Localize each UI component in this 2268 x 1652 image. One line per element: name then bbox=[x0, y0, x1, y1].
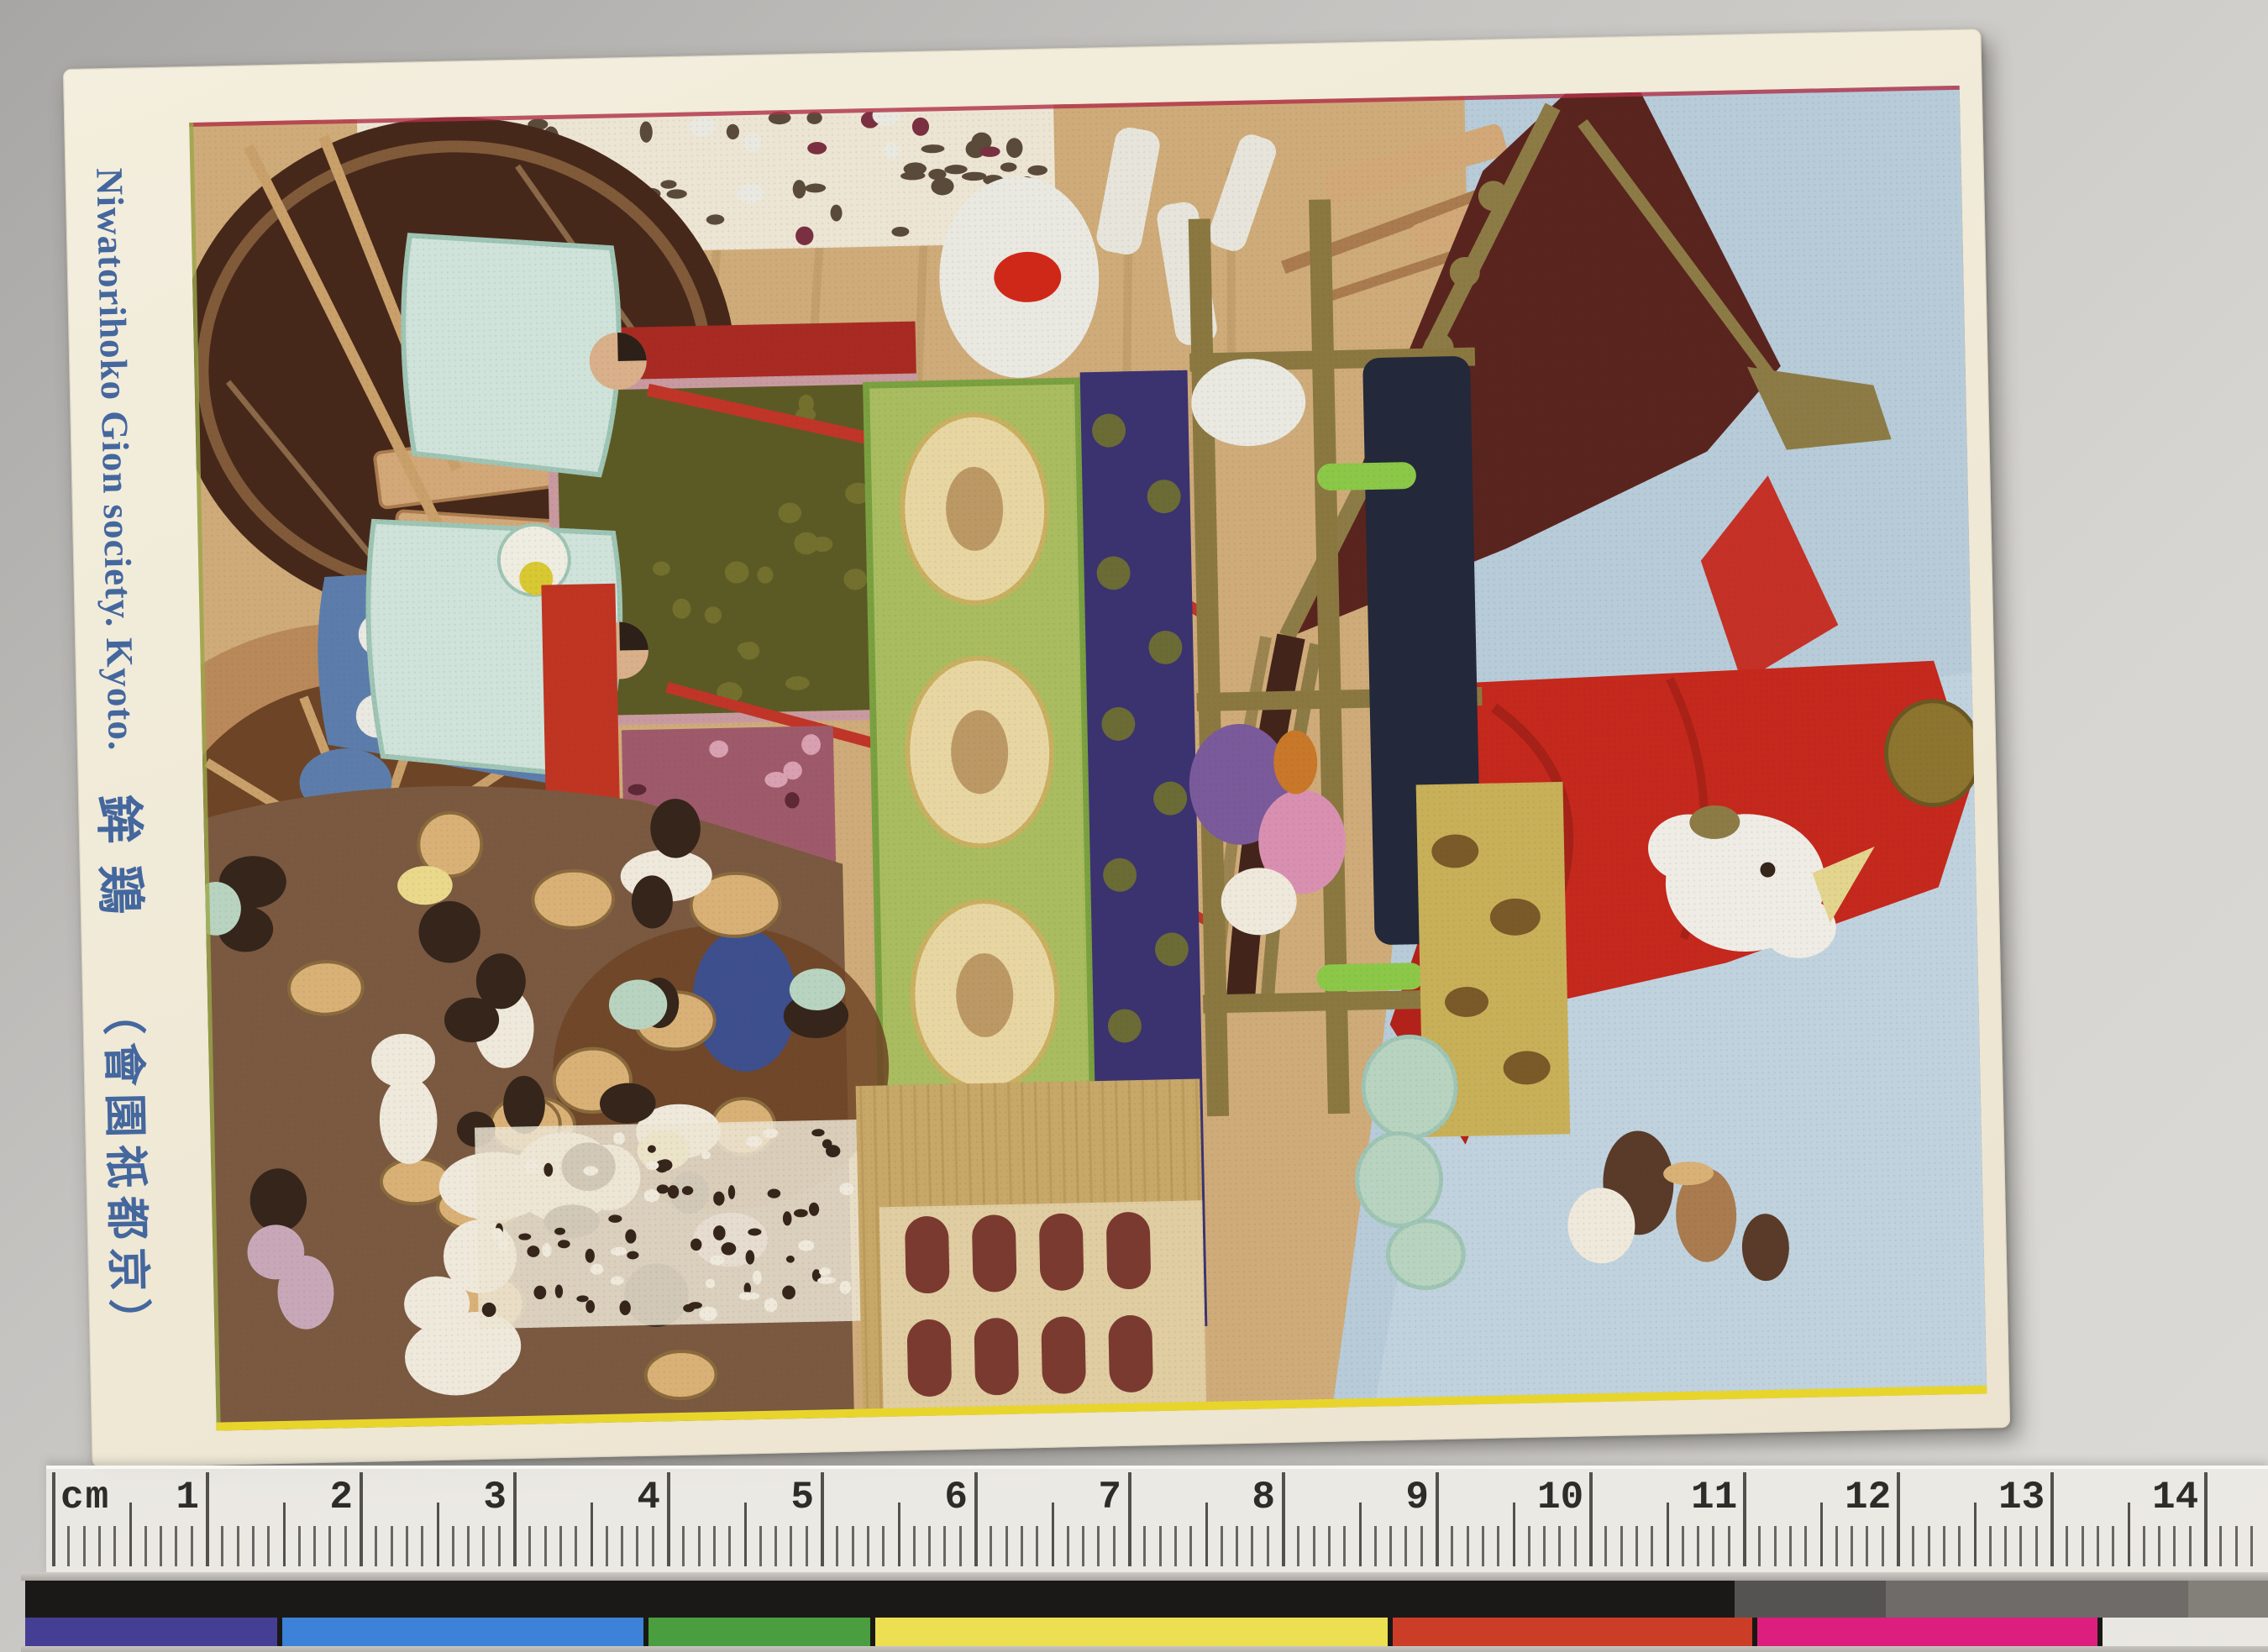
ruler-tick bbox=[1697, 1526, 1699, 1566]
ruler-tick bbox=[1820, 1503, 1823, 1566]
ruler-tick bbox=[913, 1526, 916, 1566]
ruler-tick bbox=[1451, 1526, 1453, 1566]
ruler-tick bbox=[482, 1526, 485, 1566]
ruler-number-8: 8 bbox=[1230, 1476, 1275, 1519]
ruler-tick bbox=[437, 1503, 439, 1566]
ruler-tick bbox=[1251, 1526, 1253, 1566]
ruler-tick bbox=[1313, 1526, 1315, 1566]
ruler-tick bbox=[1021, 1526, 1023, 1566]
ruler-tick bbox=[1804, 1526, 1807, 1566]
ruler-tick bbox=[1528, 1526, 1530, 1566]
ruler-tick bbox=[575, 1526, 577, 1566]
ruler-tick bbox=[344, 1526, 347, 1566]
caption-english: Niwatorihoko Gion society. Kyoto. bbox=[87, 167, 144, 751]
ruler-tick bbox=[898, 1503, 900, 1566]
ruler-tick bbox=[1067, 1526, 1069, 1566]
ruler-tick bbox=[2019, 1526, 2022, 1566]
ruler-tick bbox=[1943, 1526, 1945, 1566]
ruler-tick bbox=[1497, 1526, 1499, 1566]
ruler-tick bbox=[2066, 1526, 2068, 1566]
ruler-tick bbox=[252, 1526, 255, 1566]
ruler-tick bbox=[1082, 1526, 1084, 1566]
ruler-tick bbox=[1236, 1526, 1238, 1566]
ruler-tick bbox=[1604, 1526, 1607, 1566]
ruler-tick bbox=[283, 1503, 286, 1566]
ruler-tick bbox=[1928, 1526, 1930, 1566]
ruler-cm-tick bbox=[206, 1472, 209, 1566]
color-patch-magenta bbox=[1757, 1618, 2097, 1646]
ruler-tick bbox=[790, 1526, 792, 1566]
ruler-tick bbox=[1835, 1526, 1838, 1566]
ruler-tick bbox=[452, 1526, 454, 1566]
ruler-tick bbox=[67, 1526, 70, 1566]
ruler-cm-tick bbox=[821, 1472, 824, 1566]
ruler-tick bbox=[943, 1526, 946, 1566]
ruler-cm-tick bbox=[1743, 1472, 1746, 1566]
ruler-tick bbox=[328, 1526, 331, 1566]
ruler-tick bbox=[1036, 1526, 1038, 1566]
ruler-tick bbox=[1389, 1526, 1392, 1566]
ruler-tick bbox=[1651, 1526, 1653, 1566]
ruler-tick bbox=[1420, 1526, 1423, 1566]
ruler-tick bbox=[144, 1526, 147, 1566]
ruler-tick bbox=[1574, 1526, 1577, 1566]
postcard-caption: Niwatorihoko Gion society. Kyoto. 鉾 鶏 （會… bbox=[79, 167, 165, 1382]
ruler-tick bbox=[175, 1526, 177, 1566]
ruler-tick bbox=[591, 1503, 593, 1566]
caption-kyoto-gion-kai: （會園祇都京） bbox=[95, 990, 165, 1350]
ruler-tick bbox=[2158, 1526, 2160, 1566]
ruler-tick bbox=[1205, 1503, 1208, 1566]
ruler-tick bbox=[1404, 1526, 1407, 1566]
ruler-tick bbox=[498, 1526, 501, 1566]
ruler-tick bbox=[1774, 1526, 1777, 1566]
ruler-cm-tick bbox=[2050, 1472, 2054, 1566]
ruler-tick bbox=[1159, 1526, 1162, 1566]
ruler-number-7: 7 bbox=[1076, 1476, 1121, 1519]
ruler-tick bbox=[636, 1526, 638, 1566]
ruler-unit-label: cm bbox=[60, 1476, 128, 1519]
ruler-tick bbox=[1343, 1526, 1346, 1566]
scan-background: Niwatorihoko Gion society. Kyoto. 鉾 鶏 （會… bbox=[0, 0, 2268, 1652]
halftone-overlay bbox=[189, 86, 1987, 1431]
ruler-tick bbox=[606, 1526, 608, 1566]
ruler-tick bbox=[2082, 1526, 2084, 1566]
ruler-tick bbox=[313, 1526, 316, 1566]
ruler-tick bbox=[1482, 1526, 1484, 1566]
ruler-number-3: 3 bbox=[461, 1476, 507, 1519]
ruler-tick bbox=[1789, 1526, 1792, 1566]
ruler-tick bbox=[1851, 1526, 1853, 1566]
ruler-tick bbox=[1328, 1526, 1331, 1566]
color-patch-white bbox=[2103, 1618, 2268, 1646]
ruler-tick bbox=[421, 1526, 423, 1566]
ruler-tick bbox=[129, 1503, 132, 1566]
ruler-tick bbox=[2219, 1526, 2222, 1566]
ruler-tick bbox=[1297, 1526, 1299, 1566]
ruler-tick bbox=[113, 1526, 116, 1566]
ruler-tick bbox=[1912, 1526, 1914, 1566]
ruler-tick bbox=[836, 1526, 838, 1566]
ruler-tick bbox=[1113, 1526, 1116, 1566]
ruler-cm-tick bbox=[1436, 1472, 1439, 1566]
ruler-tick bbox=[406, 1526, 408, 1566]
postcard: Niwatorihoko Gion society. Kyoto. 鉾 鶏 （會… bbox=[63, 29, 2010, 1467]
caption-kanji-niwatori: 鶏 bbox=[89, 864, 160, 915]
ruler-number-13: 13 bbox=[1998, 1476, 2044, 1519]
ruler-number-14: 14 bbox=[2152, 1476, 2197, 1519]
color-patch-row bbox=[0, 1618, 2268, 1646]
ruler-tick bbox=[1558, 1526, 1561, 1566]
ruler-tick bbox=[160, 1526, 162, 1566]
ruler-tick bbox=[2035, 1526, 2038, 1566]
target-metal-edge-bottom bbox=[21, 1646, 2268, 1652]
ruler-tick bbox=[990, 1526, 992, 1566]
target-metal-edge bbox=[21, 1572, 2268, 1581]
gray-step-4 bbox=[2188, 1581, 2268, 1618]
ruler-number-12: 12 bbox=[1845, 1476, 1890, 1519]
ruler-tick bbox=[959, 1526, 962, 1566]
ruler-tick bbox=[298, 1526, 301, 1566]
ruler-cm-tick bbox=[360, 1472, 363, 1566]
ruler-tick bbox=[1174, 1526, 1177, 1566]
ruler-tick bbox=[728, 1526, 731, 1566]
ruler-tick bbox=[1267, 1526, 1269, 1566]
ruler-tick bbox=[267, 1526, 270, 1566]
ruler-tick bbox=[1620, 1526, 1623, 1566]
ruler-cm-tick bbox=[1128, 1472, 1131, 1566]
ruler-body bbox=[46, 1466, 2268, 1576]
ruler-cm-tick bbox=[513, 1472, 517, 1566]
ruler-tick bbox=[928, 1526, 931, 1566]
ruler-cm-tick bbox=[1897, 1472, 1900, 1566]
ruler-tick bbox=[682, 1526, 685, 1566]
ruler-tick bbox=[1866, 1526, 1868, 1566]
gray-step-3 bbox=[1886, 1581, 2188, 1618]
ruler-number-11: 11 bbox=[1691, 1476, 1736, 1519]
ruler-number-10: 10 bbox=[1537, 1476, 1583, 1519]
ruler-tick bbox=[713, 1526, 716, 1566]
ruler-cm-tick bbox=[1589, 1472, 1593, 1566]
ruler-tick bbox=[375, 1526, 377, 1566]
ruler-tick bbox=[1374, 1526, 1377, 1566]
ruler-tick bbox=[2235, 1526, 2238, 1566]
ruler-tick bbox=[1467, 1526, 1469, 1566]
ruler-tick bbox=[2097, 1526, 2099, 1566]
ruler-tick bbox=[237, 1526, 239, 1566]
ruler: cm1234567891011121314 bbox=[0, 1466, 2268, 1572]
ruler-tick bbox=[2189, 1526, 2192, 1566]
ruler-tick bbox=[98, 1526, 101, 1566]
ruler-number-5: 5 bbox=[769, 1476, 814, 1519]
ruler-number-2: 2 bbox=[307, 1476, 353, 1519]
ruler-tick bbox=[1989, 1526, 1992, 1566]
ruler-tick bbox=[652, 1526, 654, 1566]
ruler-cm-tick bbox=[974, 1472, 978, 1566]
ruler-tick bbox=[2173, 1526, 2176, 1566]
ruler-tick bbox=[1682, 1526, 1684, 1566]
photo-scene-svg bbox=[189, 86, 1987, 1431]
ruler-tick bbox=[1882, 1526, 1884, 1566]
ruler-tick bbox=[774, 1526, 777, 1566]
ruler-tick bbox=[1974, 1503, 1977, 1566]
ruler-number-9: 9 bbox=[1383, 1476, 1429, 1519]
ruler-tick bbox=[1712, 1526, 1714, 1566]
ruler-tick bbox=[544, 1526, 547, 1566]
ruler-tick bbox=[744, 1503, 747, 1566]
color-patch-red bbox=[1393, 1618, 1752, 1646]
ruler-number-4: 4 bbox=[615, 1476, 660, 1519]
ruler-tick bbox=[1758, 1526, 1761, 1566]
ruler-tick bbox=[2004, 1526, 2007, 1566]
postcard-photo bbox=[189, 86, 1987, 1431]
ruler-number-1: 1 bbox=[154, 1476, 199, 1519]
ruler-tick bbox=[1359, 1503, 1362, 1566]
color-patch-indigo bbox=[25, 1618, 277, 1646]
ruler-tick bbox=[1221, 1526, 1223, 1566]
ruler-tick bbox=[1189, 1526, 1192, 1566]
color-patch-yellow bbox=[875, 1618, 1388, 1646]
ruler-tick bbox=[528, 1526, 531, 1566]
ruler-tick bbox=[1005, 1526, 1008, 1566]
color-patch-blue bbox=[282, 1618, 643, 1646]
ruler-tick bbox=[83, 1526, 86, 1566]
caption-kanji-hoko: 鉾 bbox=[87, 794, 159, 844]
ruler-tick bbox=[467, 1526, 470, 1566]
color-calibration-target bbox=[0, 1572, 2268, 1652]
ruler-tick bbox=[1513, 1503, 1515, 1566]
ruler-tick bbox=[2143, 1526, 2145, 1566]
ruler-cm-tick bbox=[52, 1472, 55, 1566]
ruler-tick bbox=[759, 1526, 762, 1566]
ruler-tick bbox=[1543, 1526, 1546, 1566]
ruler-tick bbox=[1958, 1526, 1961, 1566]
ruler-tick bbox=[698, 1526, 701, 1566]
ruler-cm-tick bbox=[667, 1472, 670, 1566]
ruler-tick bbox=[1052, 1503, 1054, 1566]
ruler-tick bbox=[1635, 1526, 1638, 1566]
ruler-tick bbox=[867, 1526, 869, 1566]
gray-step-1 bbox=[25, 1581, 1735, 1618]
ruler-tick bbox=[559, 1526, 562, 1566]
ruler-tick bbox=[882, 1526, 885, 1566]
ruler-tick bbox=[1143, 1526, 1146, 1566]
gray-step-2 bbox=[1735, 1581, 1886, 1618]
ruler-tick bbox=[621, 1526, 623, 1566]
ruler-tick bbox=[2128, 1503, 2130, 1566]
ruler-tick bbox=[221, 1526, 223, 1566]
ruler-tick bbox=[2112, 1526, 2114, 1566]
ruler-tick bbox=[806, 1526, 808, 1566]
ruler-cm-tick bbox=[1282, 1472, 1285, 1566]
ruler-tick bbox=[1667, 1503, 1669, 1566]
ruler-tick bbox=[1097, 1526, 1100, 1566]
ruler-cm-tick bbox=[2204, 1472, 2208, 1566]
grayscale-wedge-row bbox=[0, 1581, 2268, 1618]
color-patch-green bbox=[648, 1618, 870, 1646]
ruler-tick bbox=[391, 1526, 393, 1566]
ruler-number-6: 6 bbox=[922, 1476, 968, 1519]
ruler-tick bbox=[2250, 1526, 2253, 1566]
ruler-tick bbox=[852, 1526, 854, 1566]
ruler-tick bbox=[191, 1526, 193, 1566]
ruler-tick bbox=[1728, 1526, 1730, 1566]
